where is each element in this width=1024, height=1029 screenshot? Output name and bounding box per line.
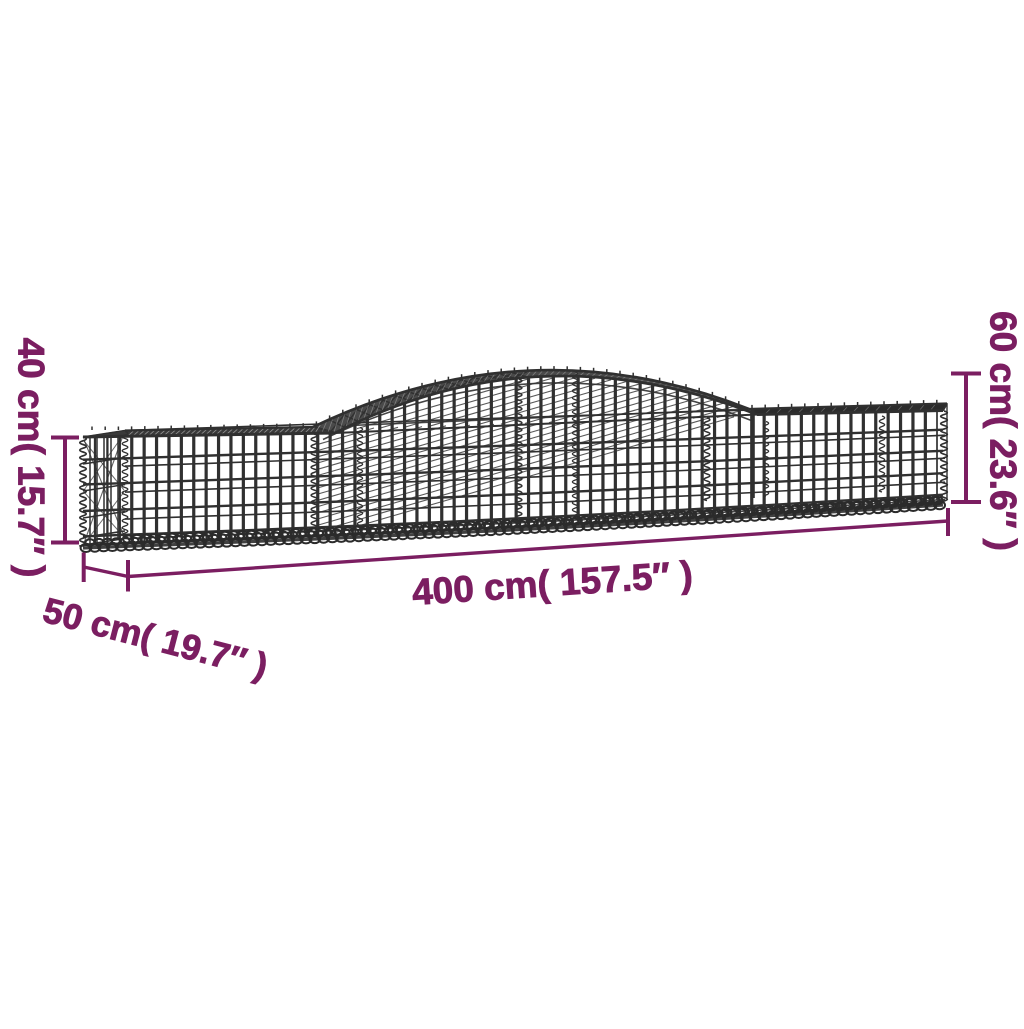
svg-text:40 cm( 15.7″ ): 40 cm( 15.7″ ) — [11, 338, 52, 578]
svg-text:60 cm( 23.6″ ): 60 cm( 23.6″ ) — [983, 311, 1024, 551]
